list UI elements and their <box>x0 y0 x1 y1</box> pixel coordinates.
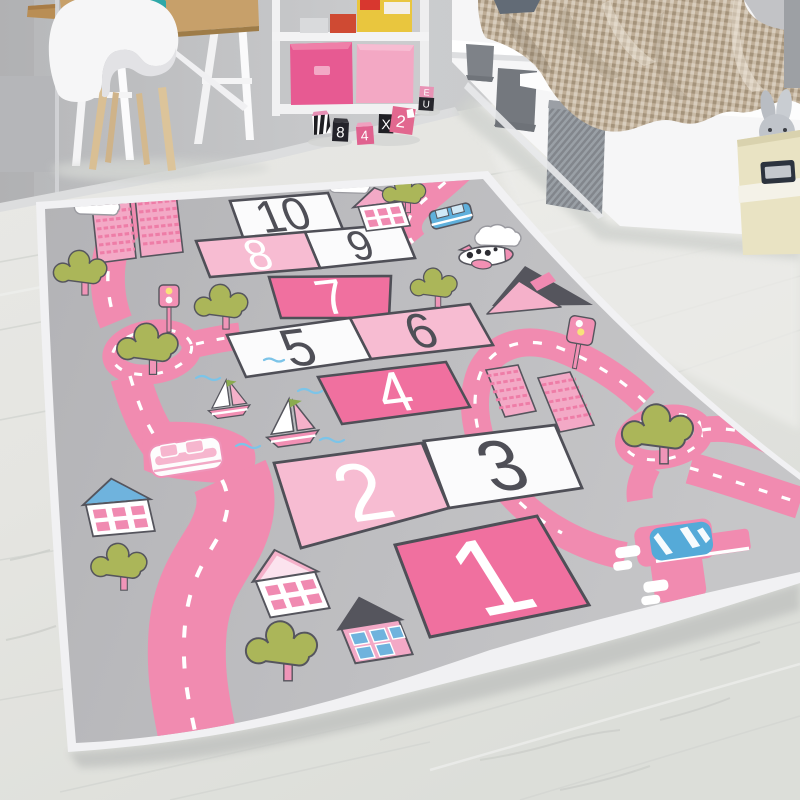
svg-text:4: 4 <box>360 127 369 144</box>
svg-text:8: 8 <box>336 124 345 141</box>
svg-text:E: E <box>423 87 430 97</box>
svg-text:U: U <box>422 99 430 110</box>
